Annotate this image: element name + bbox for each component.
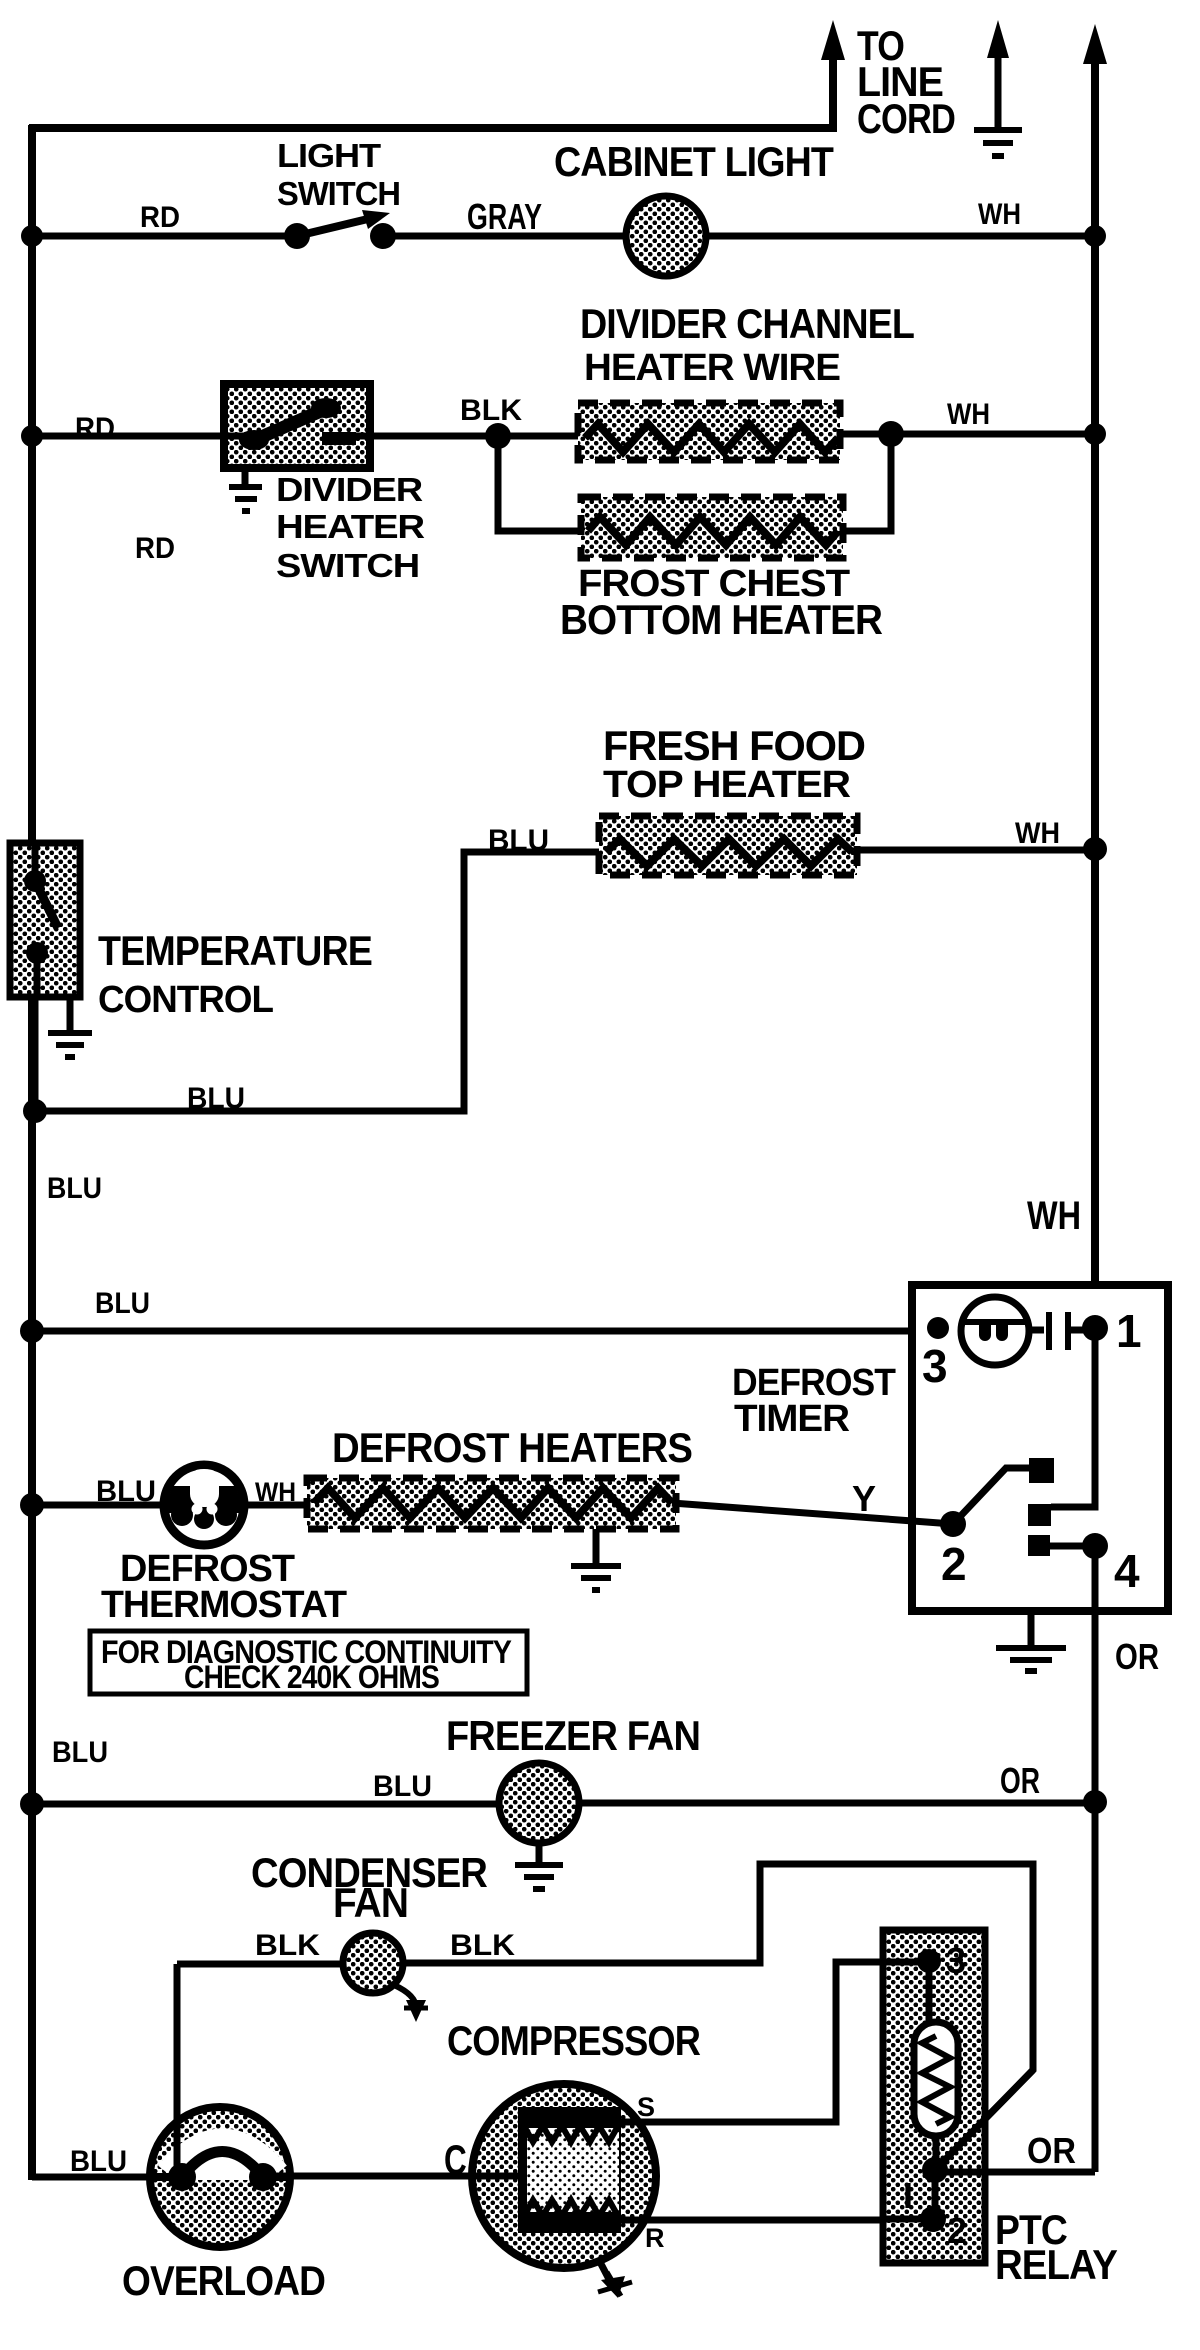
svg-text:COMPRESSOR: COMPRESSOR (447, 2017, 701, 2064)
svg-text:FREEZER FAN: FREEZER FAN (446, 1712, 700, 1759)
svg-text:BLU: BLU (70, 2145, 127, 2178)
svg-text:BLK: BLK (255, 1929, 320, 1962)
svg-text:HEATER: HEATER (276, 508, 425, 545)
svg-text:DIVIDER CHANNEL: DIVIDER CHANNEL (580, 300, 914, 347)
svg-text:FRESH FOOD: FRESH FOOD (603, 722, 865, 769)
svg-text:BLU: BLU (52, 1736, 108, 1769)
svg-text:CHECK 240K OHMS: CHECK 240K OHMS (184, 1659, 440, 1695)
svg-text:Y: Y (852, 1478, 876, 1519)
svg-text:3: 3 (922, 1340, 948, 1392)
svg-text:C: C (444, 2136, 466, 2183)
svg-text:GRAY: GRAY (467, 196, 542, 237)
svg-text:TIMER: TIMER (734, 1398, 850, 1440)
svg-text:TEMPERATURE: TEMPERATURE (98, 927, 372, 974)
svg-text:RD: RD (75, 412, 115, 445)
svg-text:SWITCH: SWITCH (276, 547, 419, 584)
svg-text:OR: OR (1000, 1760, 1040, 1801)
svg-text:BLU: BLU (187, 1082, 245, 1115)
svg-text:BLU: BLU (95, 1287, 150, 1320)
svg-text:WH: WH (1015, 817, 1060, 850)
svg-text:HEATER WIRE: HEATER WIRE (584, 347, 840, 389)
svg-text:OVERLOAD: OVERLOAD (122, 2257, 325, 2304)
svg-text:I: I (903, 2175, 913, 2216)
svg-text:RD: RD (135, 532, 175, 565)
svg-text:CABINET LIGHT: CABINET LIGHT (554, 138, 834, 185)
svg-text:THERMOSTAT: THERMOSTAT (101, 1584, 347, 1626)
svg-text:BLU: BLU (488, 824, 549, 857)
svg-text:BLU: BLU (96, 1475, 156, 1508)
svg-text:LIGHT: LIGHT (277, 137, 381, 174)
svg-text:FAN: FAN (333, 1879, 408, 1926)
svg-text:WH: WH (947, 398, 990, 431)
svg-text:DIVIDER: DIVIDER (276, 471, 423, 508)
svg-text:BLU: BLU (373, 1770, 432, 1803)
svg-text:CORD: CORD (857, 95, 955, 142)
svg-text:2: 2 (947, 2210, 967, 2251)
svg-text:OR: OR (1115, 1636, 1159, 1677)
svg-text:BLK: BLK (450, 1929, 515, 1962)
svg-text:BOTTOM HEATER: BOTTOM HEATER (560, 596, 883, 643)
svg-text:BLU: BLU (47, 1172, 102, 1205)
svg-text:TOP HEATER: TOP HEATER (603, 764, 851, 806)
svg-text:S: S (637, 2092, 655, 2122)
svg-text:R: R (645, 2223, 665, 2253)
svg-text:WH: WH (978, 198, 1021, 231)
svg-text:CONTROL: CONTROL (98, 979, 274, 1021)
svg-text:RD: RD (140, 201, 180, 234)
svg-text:RELAY: RELAY (995, 2241, 1118, 2288)
svg-text:DEFROST HEATERS: DEFROST HEATERS (332, 1424, 692, 1471)
svg-text:SWITCH: SWITCH (277, 175, 400, 212)
svg-text:1: 1 (1116, 1305, 1142, 1357)
svg-text:2: 2 (941, 1538, 967, 1590)
svg-text:OR: OR (1027, 2130, 1076, 2171)
svg-text:4: 4 (1114, 1545, 1140, 1597)
svg-text:WH: WH (1027, 1194, 1081, 1238)
svg-text:BLK: BLK (460, 394, 522, 427)
svg-text:3: 3 (946, 1940, 966, 1981)
